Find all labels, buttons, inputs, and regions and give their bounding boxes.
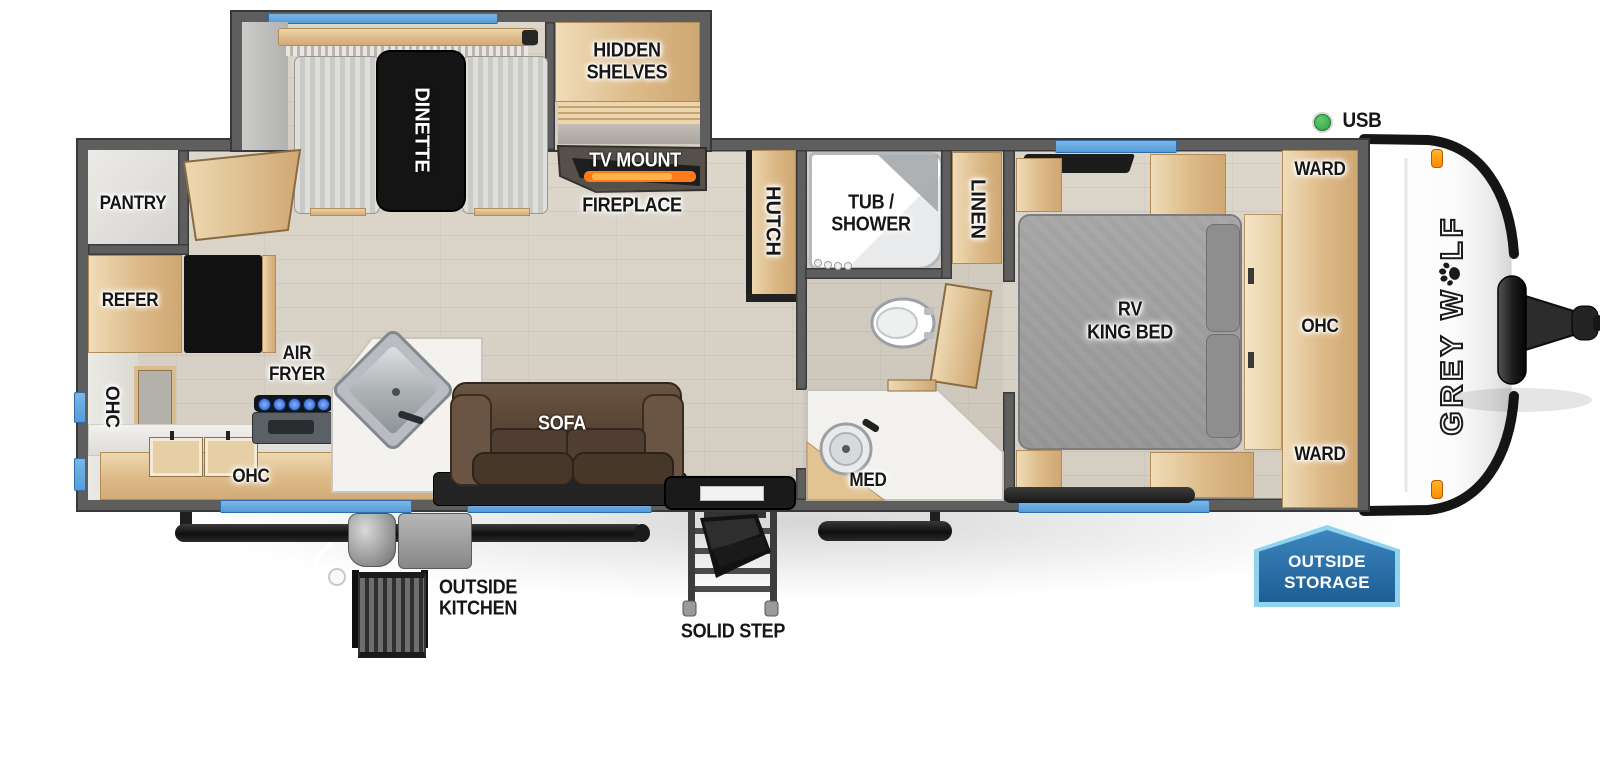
brand-text-prefix: GREY W [1434, 286, 1469, 435]
toilet-icon [872, 299, 934, 347]
sofa-front-cushion [572, 452, 674, 486]
bathroom-door-open [931, 284, 992, 388]
hutch-label: HUTCH [761, 186, 784, 256]
bathroom-vanity [807, 380, 1003, 500]
dinette-label: DINETTE [410, 87, 433, 173]
outside-storage-label-line1: OUTSIDE [1259, 552, 1395, 572]
usb-label: USB [1342, 109, 1381, 133]
outside-kitchen-label-line2: KITCHEN [439, 598, 517, 621]
ward-top-label: WARD [1294, 159, 1345, 181]
air-fryer-label-line1: AIR [283, 343, 312, 365]
refer-label: REFER [102, 290, 159, 312]
entry-mat-insert [700, 486, 764, 501]
fireplace-flame-glow [592, 173, 672, 180]
pantry-label: PANTRY [100, 193, 167, 215]
hidden-shelves-label-line2: SHELVES [587, 62, 668, 85]
hidden-shelves-label-line1: HIDDEN [593, 40, 660, 63]
brand-logo: GREY WLF [1434, 214, 1470, 435]
ohc-left-label: OHC [100, 386, 122, 428]
brand-text-suffix: LF [1434, 214, 1469, 260]
pantry-door-open [184, 150, 300, 240]
solid-step-label: SOLID STEP [681, 621, 785, 644]
outside-kitchen-label-line1: OUTSIDE [439, 577, 517, 600]
tub-shower-label-line2: SHOWER [831, 214, 910, 237]
linen-label: LINEN [966, 179, 989, 239]
ohc-bedroom-label: OHC [1301, 316, 1338, 338]
outside-storage-label-line2: STORAGE [1259, 573, 1395, 593]
air-fryer-label-line2: FRYER [269, 364, 325, 386]
usb-indicator-icon [1312, 112, 1333, 133]
sink-drain-icon [392, 388, 400, 396]
floorplan-scene: PANTRY REFER OHC AIR FRYER OHC DINETTE H… [0, 0, 1600, 762]
sofa-front-cushion [472, 452, 574, 486]
fireplace-label: FIREPLACE [582, 195, 682, 218]
tub-shower-label-line1: TUB / [848, 192, 894, 215]
ward-bottom-label: WARD [1294, 444, 1345, 466]
tub-jet-icon [815, 260, 822, 267]
sofa-label: SOFA [538, 413, 586, 436]
king-bed-label-line2: KING BED [1087, 322, 1173, 345]
tub-jet-icon [825, 262, 832, 269]
paw-icon [1438, 260, 1464, 286]
king-bed-label-line1: RV [1118, 299, 1142, 322]
tub-jet-icon [845, 263, 852, 270]
tub-jet-icon [835, 263, 842, 270]
ohc-bottom-label: OHC [232, 466, 269, 488]
tv-mount-label: TV MOUNT [589, 150, 681, 173]
med-label: MED [849, 470, 886, 492]
